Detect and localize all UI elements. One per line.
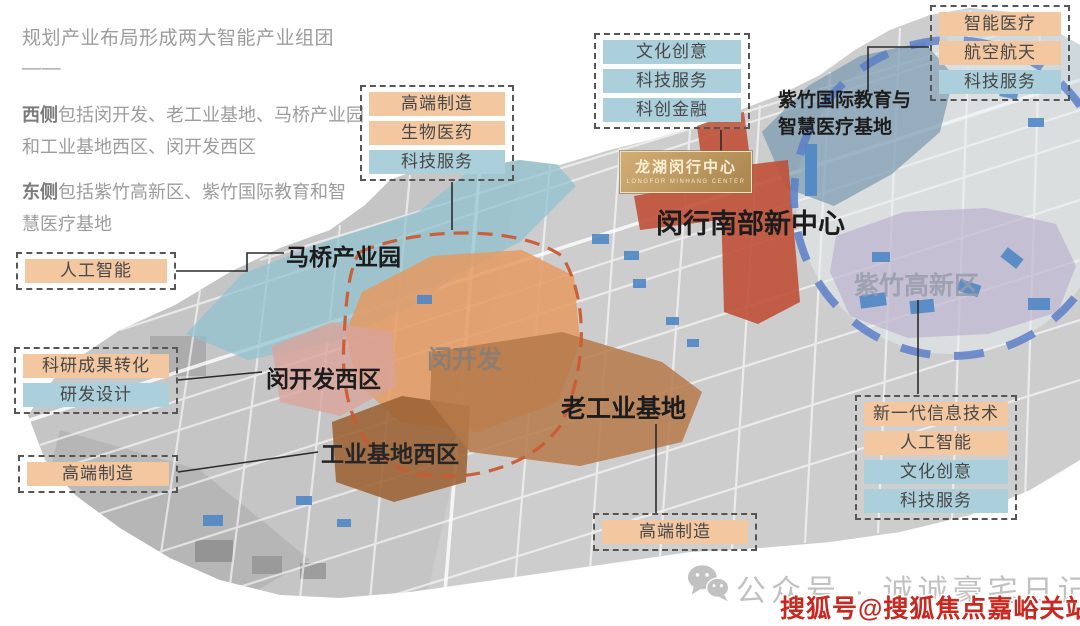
label-minhang-south-center: 闵行南部新中心 bbox=[656, 202, 845, 241]
tag-item: 科创金融 bbox=[603, 98, 741, 122]
intro-west-text: 包括闵开发、老工业基地、马桥产业园 和工业基地西区、闵开发西区 bbox=[22, 105, 364, 157]
tag-item: 人工智能 bbox=[864, 431, 1008, 455]
tag-item: 科技服务 bbox=[603, 69, 741, 93]
tag-item: 科研成果转化 bbox=[23, 354, 169, 378]
longfor-minhang-center-logo: 龙湖闵行中心 LONGFOR MINHANG CENTER bbox=[620, 151, 752, 193]
tag-item: 人工智能 bbox=[25, 259, 167, 283]
logo-subtitle: LONGFOR MINHANG CENTER bbox=[626, 179, 745, 185]
tag-item: 高端制造 bbox=[602, 520, 748, 544]
tag-item: 生物医药 bbox=[369, 121, 505, 145]
label-old-industrial-base: 老工业基地 bbox=[561, 389, 686, 425]
industrial-planning-infographic: 规划产业布局形成两大智能产业组团—— 西侧包括闵开发、老工业基地、马桥产业园 和… bbox=[0, 0, 1080, 626]
tag-group-left-ai: 人工智能 bbox=[16, 252, 176, 290]
tag-item: 高端制造 bbox=[369, 92, 505, 116]
tag-item: 文化创意 bbox=[864, 460, 1008, 484]
intro-west-paragraph: 西侧包括闵开发、老工业基地、马桥产业园 和工业基地西区、闵开发西区 bbox=[22, 99, 367, 164]
label-minkaifa: 闵开发 bbox=[427, 340, 502, 376]
tag-group-left-mfg: 高端制造 bbox=[18, 455, 178, 493]
tag-group-top-mid: 文化创意 科技服务 科创金融 bbox=[594, 33, 750, 129]
tag-item: 科技服务 bbox=[939, 70, 1061, 94]
tag-group-left-rd: 科研成果转化 研发设计 bbox=[14, 347, 178, 414]
intro-west-label: 西侧 bbox=[22, 105, 58, 125]
intro-east-paragraph: 东侧包括紫竹高新区、紫竹国际教育和智 慧医疗基地 bbox=[22, 176, 367, 241]
logo-title: 龙湖闵行中心 bbox=[635, 159, 737, 177]
intro-east-text: 包括紫竹高新区、紫竹国际教育和智 慧医疗基地 bbox=[22, 182, 346, 234]
tag-item: 研发设计 bbox=[23, 383, 169, 407]
intro-east-label: 东侧 bbox=[22, 182, 58, 202]
intro-text-block: 规划产业布局形成两大智能产业组团—— 西侧包括闵开发、老工业基地、马桥产业园 和… bbox=[22, 24, 367, 252]
tag-group-top-center: 高端制造 生物医药 科技服务 bbox=[360, 85, 514, 181]
label-minkaifa-west: 闵开发西区 bbox=[266, 360, 381, 394]
tag-item: 科技服务 bbox=[369, 150, 505, 174]
label-zizhu-hitech: 紫竹高新区 bbox=[854, 266, 979, 302]
tag-item: 航空航天 bbox=[939, 41, 1061, 65]
intro-title: 规划产业布局形成两大智能产业组团—— bbox=[22, 24, 367, 85]
tag-item: 科技服务 bbox=[864, 489, 1008, 513]
tag-item: 智能医疗 bbox=[939, 12, 1061, 36]
sohu-watermark: 搜狐号@搜狐焦点嘉峪关站 bbox=[780, 589, 1080, 625]
label-maqiao: 马桥产业园 bbox=[286, 238, 401, 272]
label-zizhu-edu-medical: 紫竹国际教育与 智慧医疗基地 bbox=[778, 88, 911, 141]
tag-item: 文化创意 bbox=[603, 40, 741, 64]
wechat-icon bbox=[686, 562, 732, 604]
label-industrial-base-west: 工业基地西区 bbox=[321, 435, 459, 469]
tag-group-right-tech: 新一代信息技术 人工智能 文化创意 科技服务 bbox=[855, 395, 1017, 520]
tag-item: 新一代信息技术 bbox=[864, 402, 1008, 426]
tag-group-bottom-mfg: 高端制造 bbox=[593, 513, 757, 551]
tag-group-top-right: 智能医疗 航空航天 科技服务 bbox=[930, 5, 1070, 101]
tag-item: 高端制造 bbox=[27, 462, 169, 486]
